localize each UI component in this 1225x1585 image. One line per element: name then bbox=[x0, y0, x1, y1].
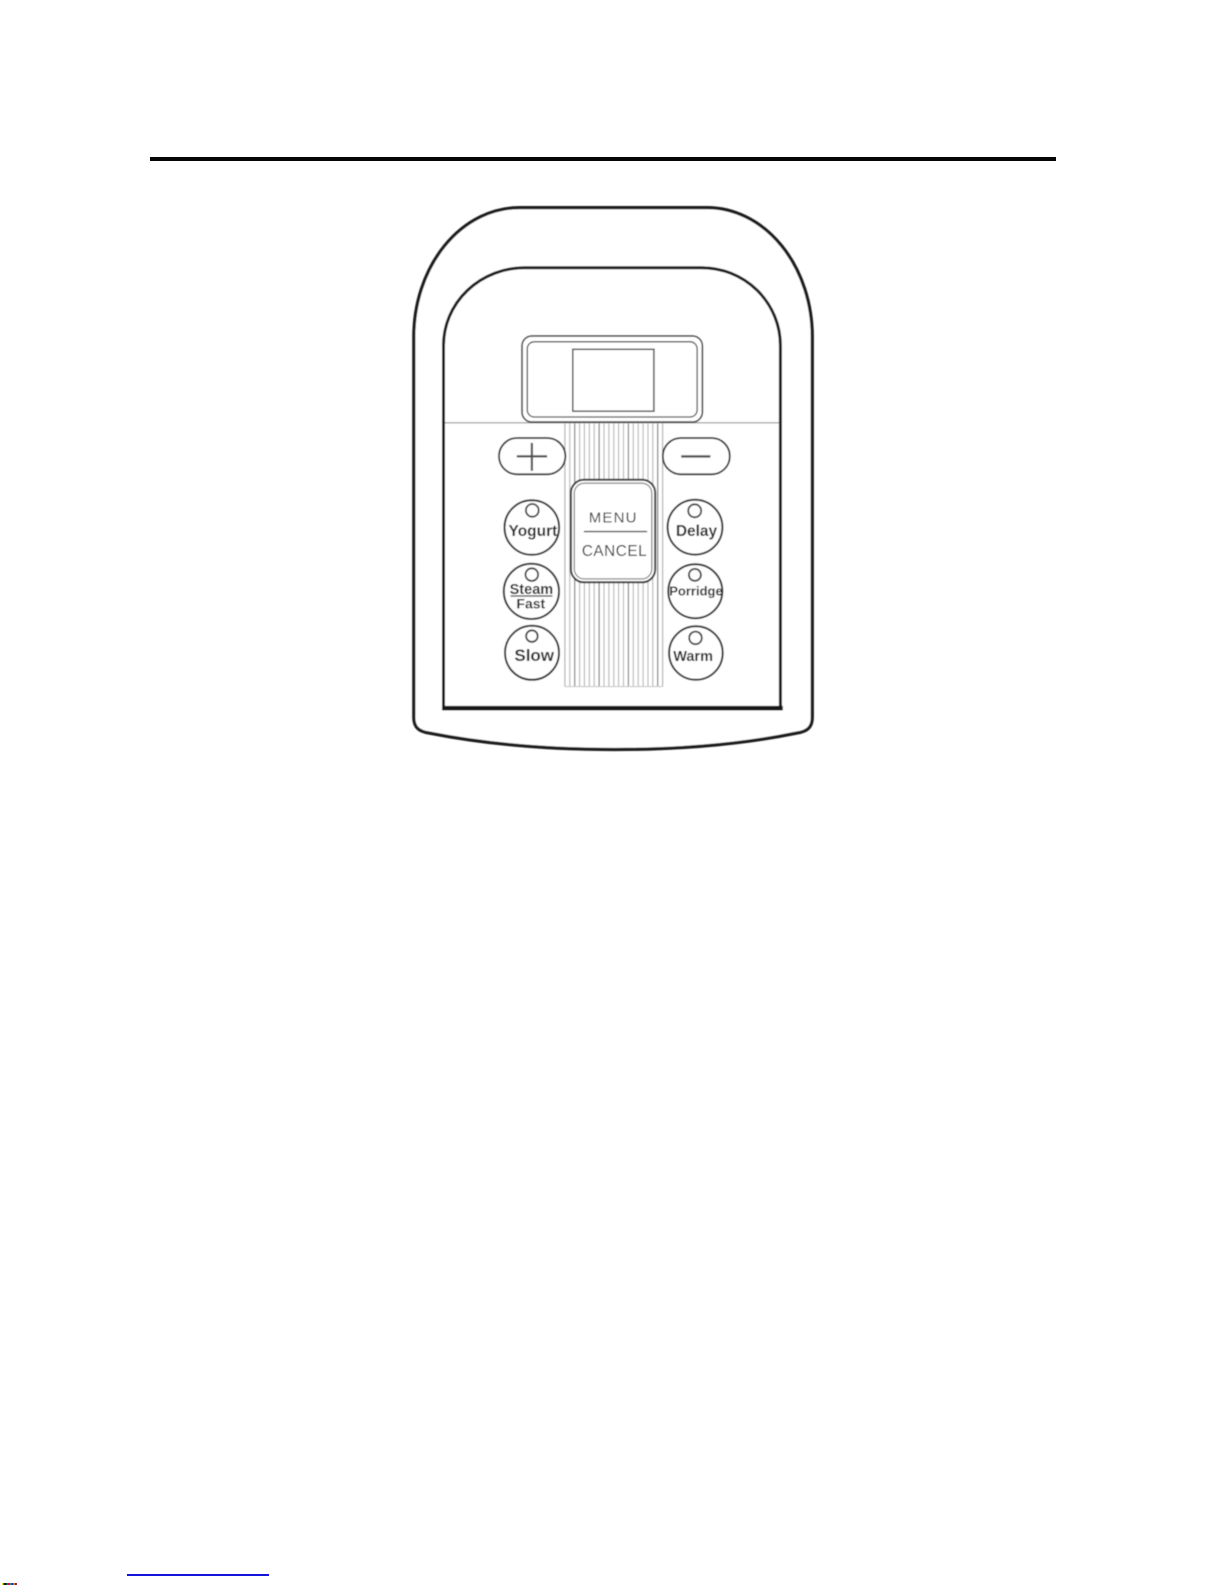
svg-text:Yogurt: Yogurt bbox=[509, 523, 558, 540]
svg-text:Porridge: Porridge bbox=[669, 584, 722, 599]
svg-text:Warm: Warm bbox=[673, 649, 713, 665]
svg-text:Slow: Slow bbox=[514, 646, 554, 665]
svg-text:CANCEL: CANCEL bbox=[582, 543, 647, 560]
svg-text:Delay: Delay bbox=[676, 523, 718, 540]
svg-text:Fast: Fast bbox=[516, 596, 545, 612]
svg-text:MENU: MENU bbox=[589, 510, 638, 527]
